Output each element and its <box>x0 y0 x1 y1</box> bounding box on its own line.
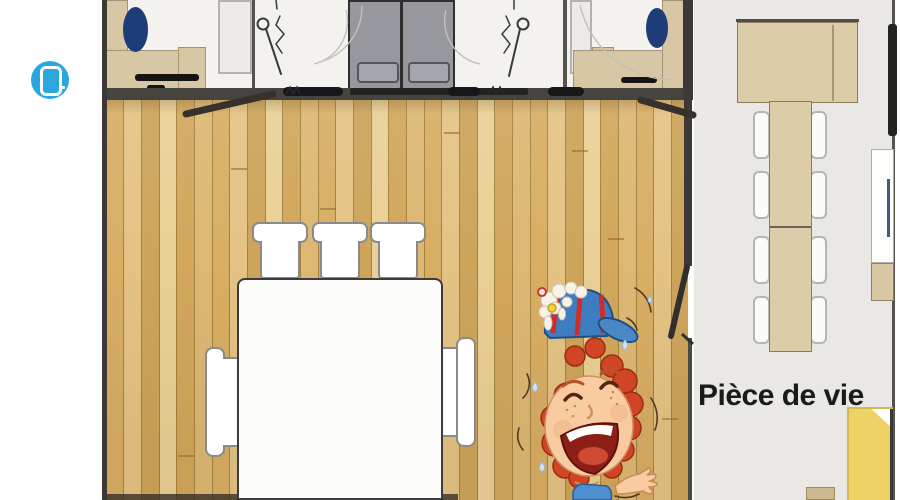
door-hinge-mark <box>682 334 693 344</box>
plan-line-details <box>0 0 900 500</box>
shower-symbol-left <box>258 0 285 74</box>
tablet-icon <box>40 66 62 96</box>
door-thresholds <box>283 87 584 96</box>
door-arcs <box>314 5 672 80</box>
shower-symbol-right <box>502 0 529 76</box>
confetti-yellow <box>548 304 556 312</box>
confetti-red <box>538 288 546 296</box>
window-bar <box>888 24 897 136</box>
floorplan-screenshot: Pièce de vie <box>0 0 900 500</box>
tongue <box>578 447 608 465</box>
shirt <box>573 484 612 500</box>
mascot-character <box>515 278 665 500</box>
gallery-tablet-button[interactable] <box>31 61 69 99</box>
